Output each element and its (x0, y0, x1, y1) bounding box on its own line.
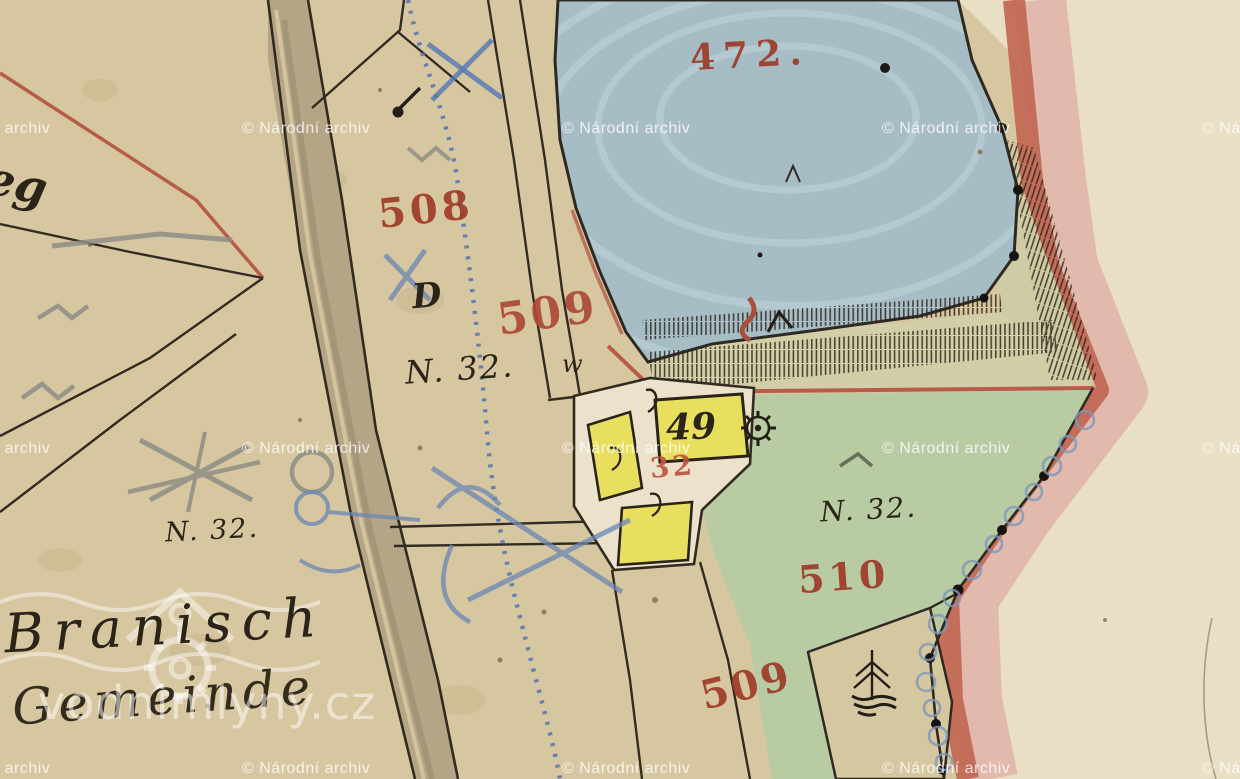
building-bottom (618, 502, 692, 565)
map-canvas: 472. 508 509 509 510 32 49 D N. 32. N. 3… (0, 0, 1240, 779)
map-artwork (0, 0, 1240, 779)
building-main (655, 394, 748, 462)
